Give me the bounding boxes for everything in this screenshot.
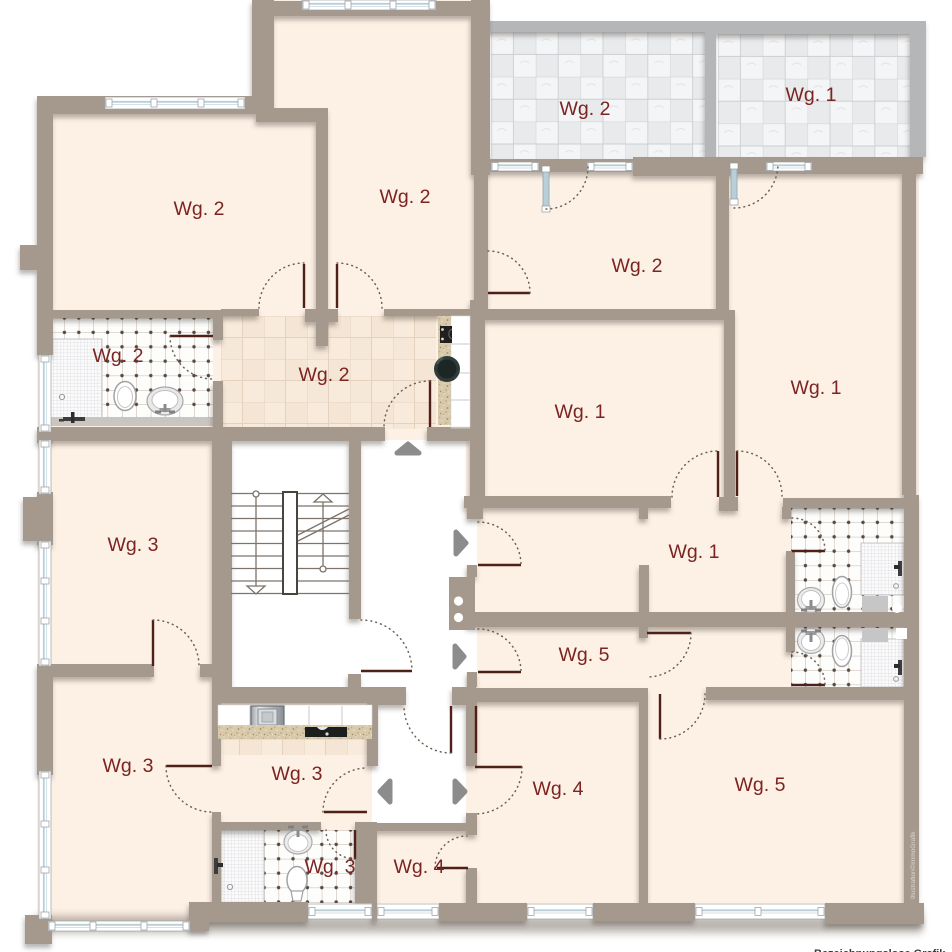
svg-text:Wg. 3: Wg. 3	[103, 755, 154, 777]
svg-text:Wg. 5: Wg. 5	[735, 774, 786, 796]
svg-text:Wg. 2: Wg. 2	[93, 345, 144, 367]
svg-text:Wg. 4: Wg. 4	[533, 778, 584, 800]
svg-text:Wg. 2: Wg. 2	[174, 198, 225, 220]
svg-text:Illustration©immoGrafik: Illustration©immoGrafik	[909, 831, 917, 899]
svg-text:Wg. 2: Wg. 2	[560, 98, 611, 120]
svg-text:Wg. 1: Wg. 1	[791, 377, 842, 399]
svg-text:Wg. 3: Wg. 3	[272, 763, 323, 785]
svg-text:Wg. 1: Wg. 1	[555, 401, 606, 423]
svg-text:Wg. 2: Wg. 2	[380, 186, 431, 208]
svg-text:Wg. 1: Wg. 1	[669, 541, 720, 563]
svg-text:Wg. 3: Wg. 3	[108, 534, 159, 556]
svg-text:Wg. 1: Wg. 1	[786, 84, 837, 106]
svg-text:Wg. 2: Wg. 2	[612, 255, 663, 277]
svg-text:Wg. 5: Wg. 5	[559, 644, 610, 666]
svg-text:Bezeichnungslose Grafik: Bezeichnungslose Grafik	[814, 948, 946, 952]
svg-text:Wg. 2: Wg. 2	[299, 364, 350, 386]
svg-text:Wg. 4: Wg. 4	[394, 856, 445, 878]
svg-text:Wg. 3: Wg. 3	[305, 856, 356, 878]
